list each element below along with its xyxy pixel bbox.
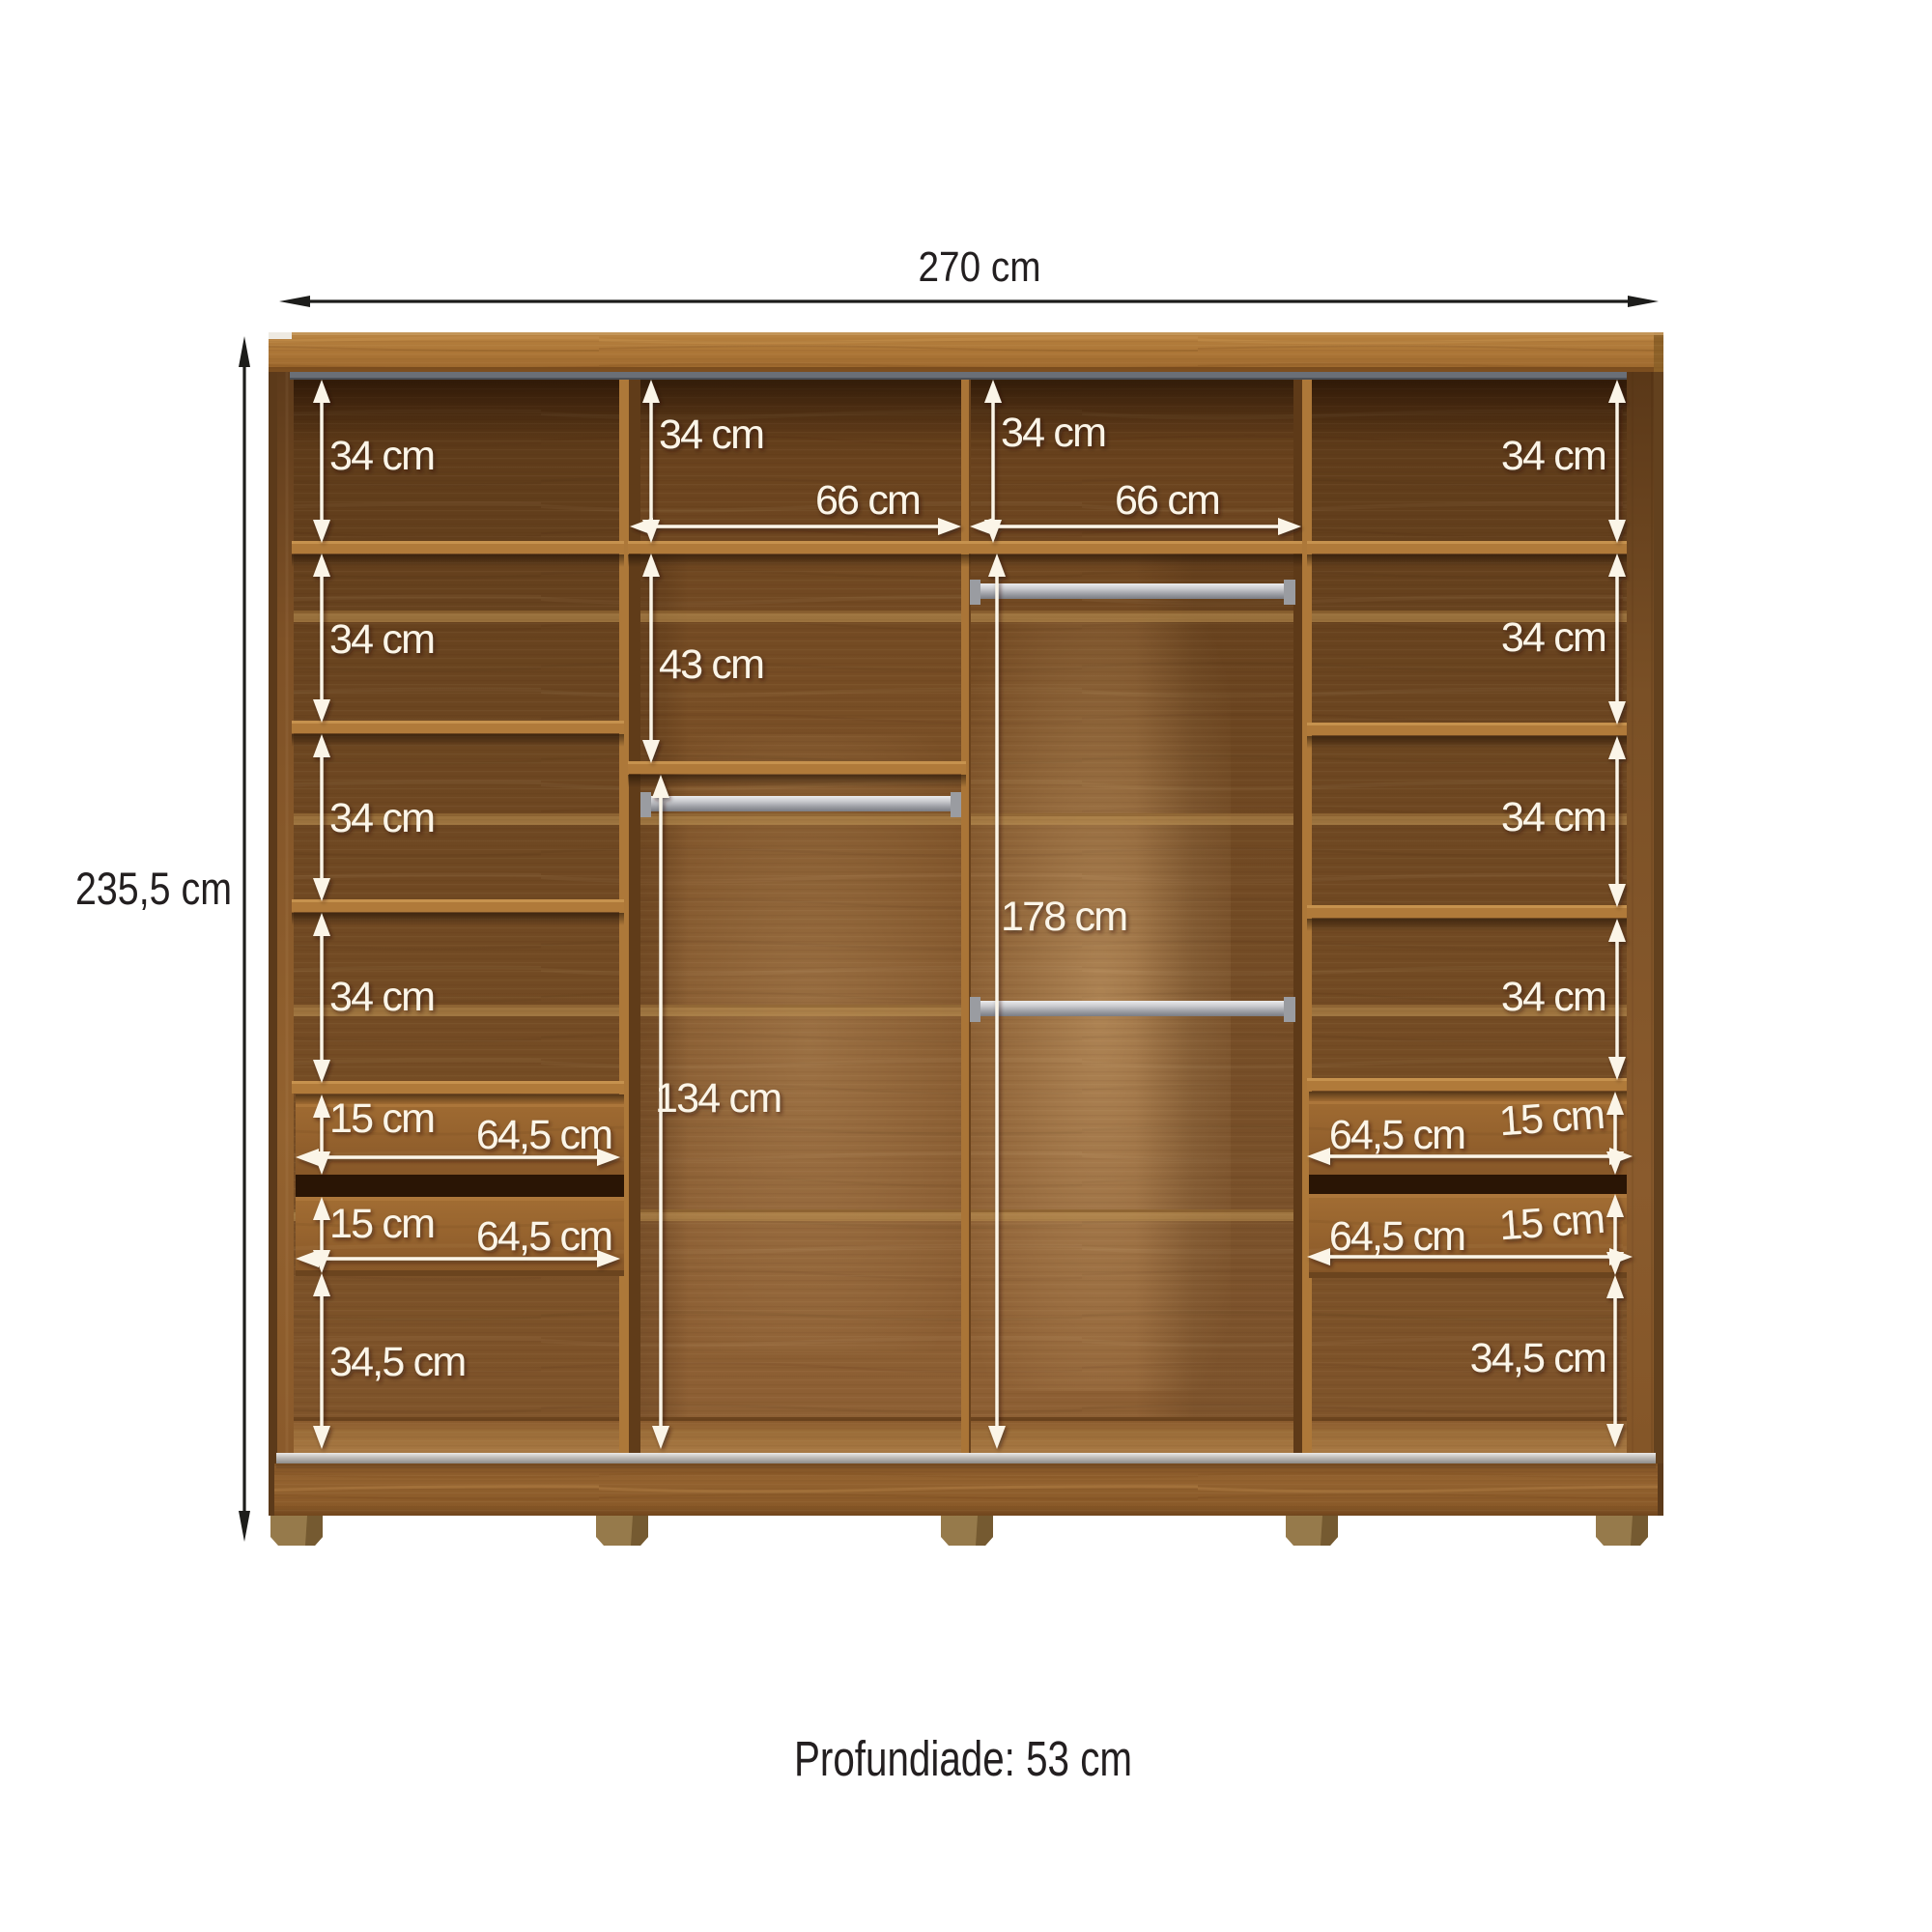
svg-text:15 cm: 15 cm xyxy=(329,1201,434,1247)
svg-text:34 cm: 34 cm xyxy=(659,412,763,458)
svg-text:Profundiade: 53 cm: Profundiade: 53 cm xyxy=(794,1731,1132,1786)
svg-text:66 cm: 66 cm xyxy=(1115,477,1219,524)
svg-text:43 cm: 43 cm xyxy=(659,641,763,688)
svg-text:270 cm: 270 cm xyxy=(919,243,1041,291)
svg-text:64,5 cm: 64,5 cm xyxy=(476,1112,611,1158)
svg-text:15 cm: 15 cm xyxy=(1497,1092,1605,1145)
svg-text:15 cm: 15 cm xyxy=(1497,1196,1605,1249)
svg-text:34 cm: 34 cm xyxy=(1501,794,1605,840)
svg-text:34 cm: 34 cm xyxy=(329,616,434,663)
svg-text:34 cm: 34 cm xyxy=(329,433,434,479)
svg-text:64,5 cm: 64,5 cm xyxy=(476,1213,611,1260)
svg-text:34 cm: 34 cm xyxy=(1501,614,1605,661)
svg-text:64,5 cm: 64,5 cm xyxy=(1329,1112,1464,1158)
svg-text:34 cm: 34 cm xyxy=(1501,433,1605,479)
svg-text:134 cm: 134 cm xyxy=(655,1075,781,1122)
svg-text:15 cm: 15 cm xyxy=(329,1095,434,1142)
svg-text:34,5 cm: 34,5 cm xyxy=(1470,1335,1605,1381)
svg-text:34 cm: 34 cm xyxy=(1001,410,1105,456)
svg-text:66 cm: 66 cm xyxy=(815,477,920,524)
svg-text:34 cm: 34 cm xyxy=(329,974,434,1020)
svg-text:34,5 cm: 34,5 cm xyxy=(329,1339,465,1385)
svg-text:34 cm: 34 cm xyxy=(1501,974,1605,1020)
svg-text:235,5 cm: 235,5 cm xyxy=(75,863,232,914)
svg-text:34 cm: 34 cm xyxy=(329,795,434,841)
svg-text:178 cm: 178 cm xyxy=(1001,894,1126,940)
svg-text:64,5 cm: 64,5 cm xyxy=(1329,1213,1464,1260)
